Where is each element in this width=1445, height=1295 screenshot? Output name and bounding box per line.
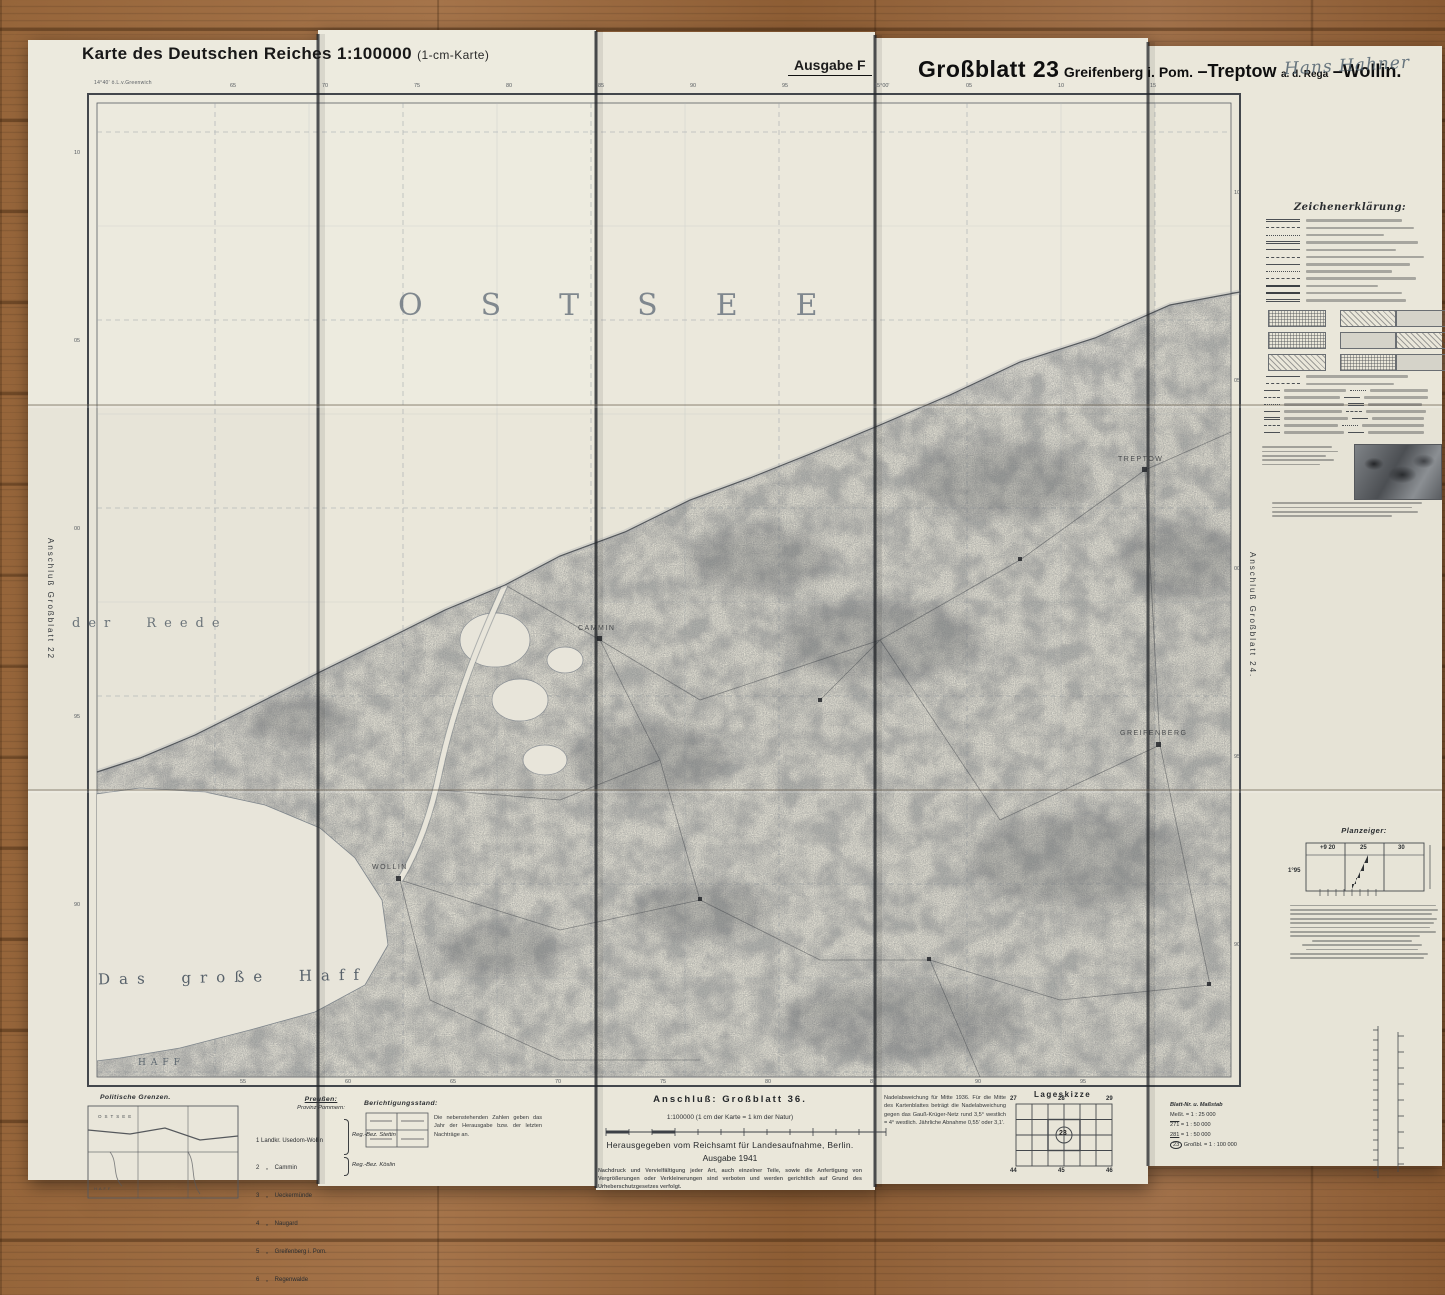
sheet-number: Großblatt 23: [918, 56, 1059, 82]
tick-top: 15: [1150, 83, 1156, 89]
legend-swatches: [1268, 310, 1442, 371]
ostsee-label: OSTSEE: [398, 288, 876, 323]
tick-top: 85: [598, 83, 604, 89]
boundary-symbol: [1266, 219, 1300, 222]
planzeiger-explanation: [1290, 902, 1438, 959]
edition-label: Ausgabe F: [788, 57, 872, 76]
tick-top: 90: [690, 83, 696, 89]
town-label-greifenberg: Greifenberg: [1120, 730, 1187, 737]
tick-top: 70: [322, 83, 328, 89]
brace-stettin: [344, 1119, 349, 1155]
series-subtitle: (1-cm-Karte): [417, 48, 489, 62]
tick-bottom: 55: [240, 1079, 246, 1085]
haff-small-label: HAFF: [138, 1058, 185, 1068]
blatt-table-title: Blatt-Nr. u. Maßstab: [1170, 1100, 1274, 1110]
tick-top: 05: [966, 83, 972, 89]
top-left-meridian-note: 14°40' ö.L.v.Greenwich: [94, 80, 152, 86]
tick-left: 10: [74, 150, 80, 156]
footer-center: Anschluß: Großblatt 36. 1:100000 (1 cm d…: [580, 1094, 880, 1121]
planzeiger-tick: 25: [1360, 845, 1367, 851]
blatt-table: Blatt-Nr. u. Maßstab Meßt. = 1 : 25 000 …: [1170, 1100, 1274, 1150]
preussen-block: Preußen: Provinz Pommern:: [262, 1096, 380, 1111]
tick-top: 80: [506, 83, 512, 89]
tick-left: 90: [74, 902, 80, 908]
tick-left: 05: [74, 338, 80, 344]
imprint: Herausgegeben vom Reichsamt für Landesau…: [580, 1140, 880, 1163]
photo-of-folded-map: Karte des Deutschen Reiches 1:100000 (1-…: [0, 0, 1445, 1211]
planzeiger-tick: +9 20: [1320, 845, 1335, 851]
lageskizze-num: 44: [1010, 1168, 1017, 1174]
mini-map-sea-label: OSTSEE: [98, 1114, 134, 1119]
series-title-text: Karte des Deutschen Reiches 1:100000: [82, 44, 412, 63]
tick-top: 75: [414, 83, 420, 89]
sheet-name-greifenberg: Greifenberg i. Pom.: [1064, 64, 1193, 80]
tick-bottom: 80: [765, 1079, 771, 1085]
planzeiger-tick: 1°95: [1288, 868, 1300, 874]
anschluss-left-vertical: Anschluß Großblatt 22: [46, 538, 55, 708]
brace-koeslin: [344, 1157, 349, 1176]
tick-top: 65: [230, 83, 236, 89]
planzeiger-tick: 30: [1398, 845, 1405, 851]
lageskizze-num: 29: [1106, 1096, 1113, 1102]
town-label-cammin: Cammin: [578, 625, 615, 632]
reede-label: der Reede: [72, 616, 228, 631]
tick-bottom: 60: [345, 1079, 351, 1085]
lageskizze-num: 45: [1058, 1168, 1065, 1174]
lageskizze-num: 46: [1106, 1168, 1113, 1174]
tick-bottom: 75: [660, 1079, 666, 1085]
politics-title: Politische Grenzen.: [100, 1094, 171, 1101]
tick-bottom: 70: [555, 1079, 561, 1085]
tick-left: 00: [74, 526, 80, 532]
berichtigung-title: Berichtigungsstand:: [364, 1100, 438, 1107]
district-list: 1 Landkr. Usedom-Wollin 2 „ Cammin 3 „ U…: [256, 1118, 342, 1295]
publisher-line: Herausgegeben vom Reichsamt für Landesau…: [580, 1140, 880, 1150]
tick-top: 15°00': [874, 83, 890, 89]
planzeiger-panel: Planzeiger:: [1288, 826, 1440, 835]
berichtigung-note: Die nebenstehenden Zahlen geben das Jahr…: [434, 1114, 542, 1139]
edition-year: Ausgabe 1941: [580, 1153, 880, 1163]
legend-row: [1266, 219, 1442, 222]
town-label-wollin: Wollin: [372, 864, 408, 871]
lageskizze-num: 28: [1058, 1096, 1065, 1102]
tick-bottom: 65: [450, 1079, 456, 1085]
planzeiger-title: Planzeiger:: [1288, 826, 1440, 835]
tick-bottom: 95: [1080, 1079, 1086, 1085]
town-label-treptow: Treptow: [1118, 456, 1163, 463]
provinz-title: Provinz Pommern:: [262, 1105, 380, 1111]
tick-right: 05: [1234, 378, 1240, 384]
reg-bez-koeslin: Reg.-Bez. Köslin: [352, 1162, 395, 1168]
sheet-name-treptow: –Treptow: [1198, 61, 1277, 81]
tick-right: 00: [1234, 566, 1240, 572]
tick-top: 10: [1058, 83, 1064, 89]
scale-note: 1:100000 (1 cm der Karte = 1 km der Natu…: [580, 1114, 880, 1121]
copyright-note: Nachdruck und Vervielfältigung jeder Art…: [598, 1168, 862, 1191]
reg-bez-stettin: Reg.-Bez. Stettin: [352, 1132, 396, 1138]
tick-top: 95: [782, 83, 788, 89]
relief-sample-image: [1354, 444, 1442, 500]
legend-title: Zeichenerklärung:: [1258, 202, 1442, 213]
nadelabweichung-note: Nadelabweichung für Mitte 1936. Für die …: [884, 1094, 1006, 1128]
mini-map-haff-label: HAFF: [94, 1186, 112, 1191]
lageskizze-sheet-number: 23: [1059, 1130, 1067, 1137]
legend-panel: Zeichenerklärung:: [1258, 202, 1442, 517]
anschluss-right-vertical: Anschluß Großblatt 24.: [1248, 552, 1257, 722]
anschluss-bottom: Anschluß: Großblatt 36.: [580, 1094, 880, 1105]
map-sheet-graphic: [0, 0, 1445, 1211]
tick-left: 95: [74, 714, 80, 720]
series-title: Karte des Deutschen Reiches 1:100000 (1-…: [82, 44, 489, 64]
tick-right: 10: [1234, 190, 1240, 196]
preussen-title: Preußen:: [262, 1096, 380, 1103]
lageskizze-num: 27: [1010, 1096, 1017, 1102]
tick-bottom: 90: [975, 1079, 981, 1085]
tick-right: 90: [1234, 942, 1240, 948]
tick-bottom: 85: [870, 1079, 876, 1085]
tick-right: 95: [1234, 754, 1240, 760]
